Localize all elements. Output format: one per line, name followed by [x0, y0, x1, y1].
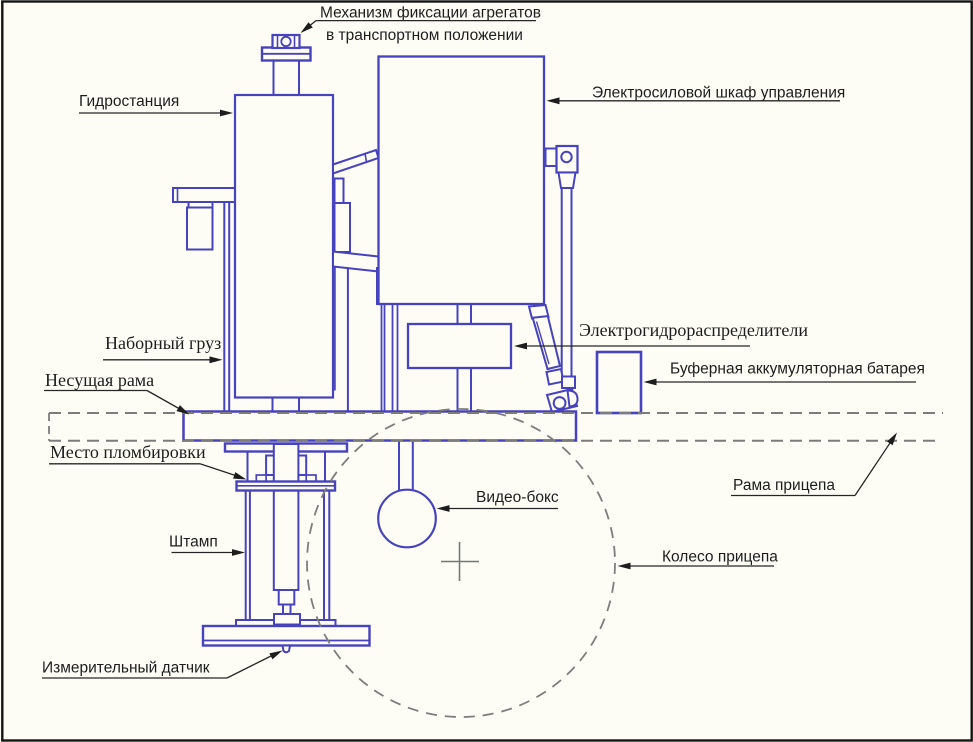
svg-text:Измерительный датчик: Измерительный датчик — [42, 660, 210, 677]
svg-text:Видео-бокс: Видео-бокс — [476, 489, 559, 506]
svg-text:Несущая рама: Несущая рама — [45, 370, 154, 390]
svg-text:Электрогидрораспределители: Электрогидрораспределители — [579, 320, 808, 340]
svg-text:Рама прицепа: Рама прицепа — [733, 477, 835, 494]
svg-text:Наборный груз: Наборный груз — [105, 333, 221, 353]
svg-text:Штамп: Штамп — [169, 534, 218, 551]
svg-text:Механизм фиксации агрегатов: Механизм фиксации агрегатов — [320, 5, 541, 22]
svg-text:Буферная аккумуляторная батаре: Буферная аккумуляторная батарея — [670, 361, 925, 378]
svg-text:Колесо прицепа: Колесо прицепа — [662, 549, 778, 566]
svg-text:Гидростанция: Гидростанция — [79, 93, 179, 110]
svg-text:Электросиловой шкаф управления: Электросиловой шкаф управления — [592, 85, 845, 102]
svg-text:Место пломбировки: Место пломбировки — [50, 442, 206, 462]
svg-text:в транспортном положении: в транспортном положении — [326, 27, 523, 44]
